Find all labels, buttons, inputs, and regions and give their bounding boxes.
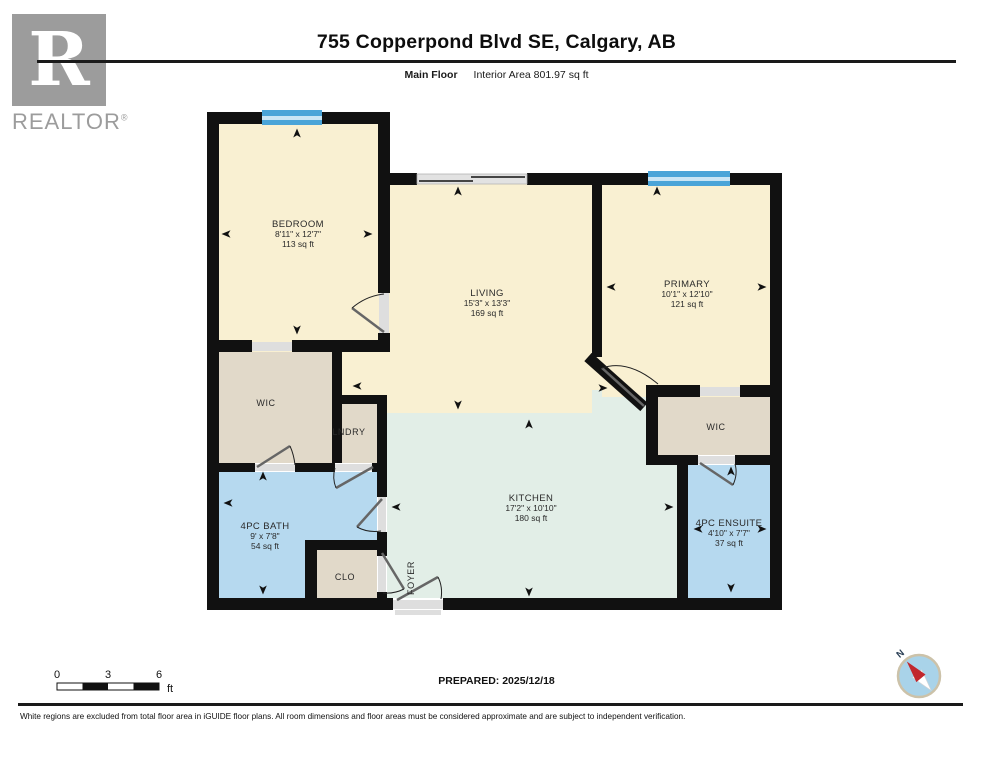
wall-bath-right-upper <box>377 472 387 497</box>
living-sliding-door <box>417 174 527 184</box>
primary-window-glass <box>648 177 730 181</box>
entry-threshold <box>395 610 441 615</box>
wall-bedroom-bottom-2 <box>292 340 390 352</box>
foyer-label: FOYER <box>406 561 416 595</box>
wall-bedroom-right-upper <box>378 112 390 293</box>
title-divider <box>37 60 956 63</box>
kitchen-area: 180 sq ft <box>515 513 548 523</box>
wall-living-top-1 <box>390 173 417 185</box>
compass-icon: N <box>893 646 940 697</box>
wall-living-top-2 <box>527 173 648 185</box>
prepared-date: PREPARED: 2025/12/18 <box>0 675 993 687</box>
wall-wic-bottom-3 <box>372 463 387 472</box>
wall-bedroom-bottom-1 <box>207 340 252 352</box>
bedroom-area: 113 sq ft <box>282 239 315 249</box>
wall-outer-left <box>207 112 219 610</box>
disclaimer-text: White regions are excluded from total fl… <box>20 712 980 721</box>
wall-bottom-2 <box>443 598 782 610</box>
living-dims: 15'3" x 13'3" <box>464 298 511 308</box>
wall-closet-top <box>305 540 387 550</box>
registered-mark: ® <box>121 113 129 123</box>
wall-bottom-1 <box>207 598 393 610</box>
opening-bedroom-door <box>379 293 389 333</box>
wall-closet-left <box>305 550 317 598</box>
floor-plan-canvas: BEDROOM 8'11" x 12'7" 113 sq ft LIVING 1… <box>0 0 993 768</box>
footer-divider <box>18 703 963 706</box>
opening-wic-ensuite <box>698 456 735 464</box>
laundry-label: LNDRY <box>332 427 365 437</box>
realtor-logo-text: REALTOR® <box>12 109 122 135</box>
wall-ensuite-left <box>677 465 688 598</box>
wic-left-label: WIC <box>256 398 275 408</box>
floorplan-page: R REALTOR® 755 Copperpond Blvd SE, Calga… <box>0 0 993 768</box>
bedroom-dims: 8'11" x 12'7" <box>275 229 321 239</box>
wall-wic-right-bottom-2 <box>735 455 782 465</box>
opening-entry <box>393 600 443 609</box>
living-area: 169 sq ft <box>471 308 504 318</box>
wall-living-primary <box>592 183 602 357</box>
opening-closet-door <box>378 556 386 592</box>
wall-primary-bottom-1 <box>648 385 700 397</box>
ensuite-area: 37 sq ft <box>715 538 744 548</box>
kitchen-dims: 17'2" x 10'10" <box>505 503 556 513</box>
wall-wic-bottom-2 <box>295 463 335 472</box>
wall-wic-right <box>332 352 342 463</box>
wall-wic-right-bottom-1 <box>646 455 698 465</box>
primary-dims: 10'1" x 12'10" <box>661 289 712 299</box>
realtor-logo: R REALTOR® <box>12 14 122 135</box>
wall-wic-bottom-1 <box>207 463 255 472</box>
wall-laundry-right <box>377 395 387 472</box>
bath-area: 54 sq ft <box>251 541 280 551</box>
opening-primary-wic <box>700 387 740 396</box>
closet-label: CLO <box>335 572 355 582</box>
opening-bedroom-wic <box>252 342 292 351</box>
bath-dims: 9' x 7'8" <box>250 531 279 541</box>
wall-primary-bottom-2 <box>740 385 782 397</box>
wic-right-label: WIC <box>706 422 725 432</box>
bedroom-window-glass <box>262 116 322 120</box>
primary-area: 121 sq ft <box>671 299 704 309</box>
ensuite-dims: 4'10" x 7'7" <box>708 528 750 538</box>
